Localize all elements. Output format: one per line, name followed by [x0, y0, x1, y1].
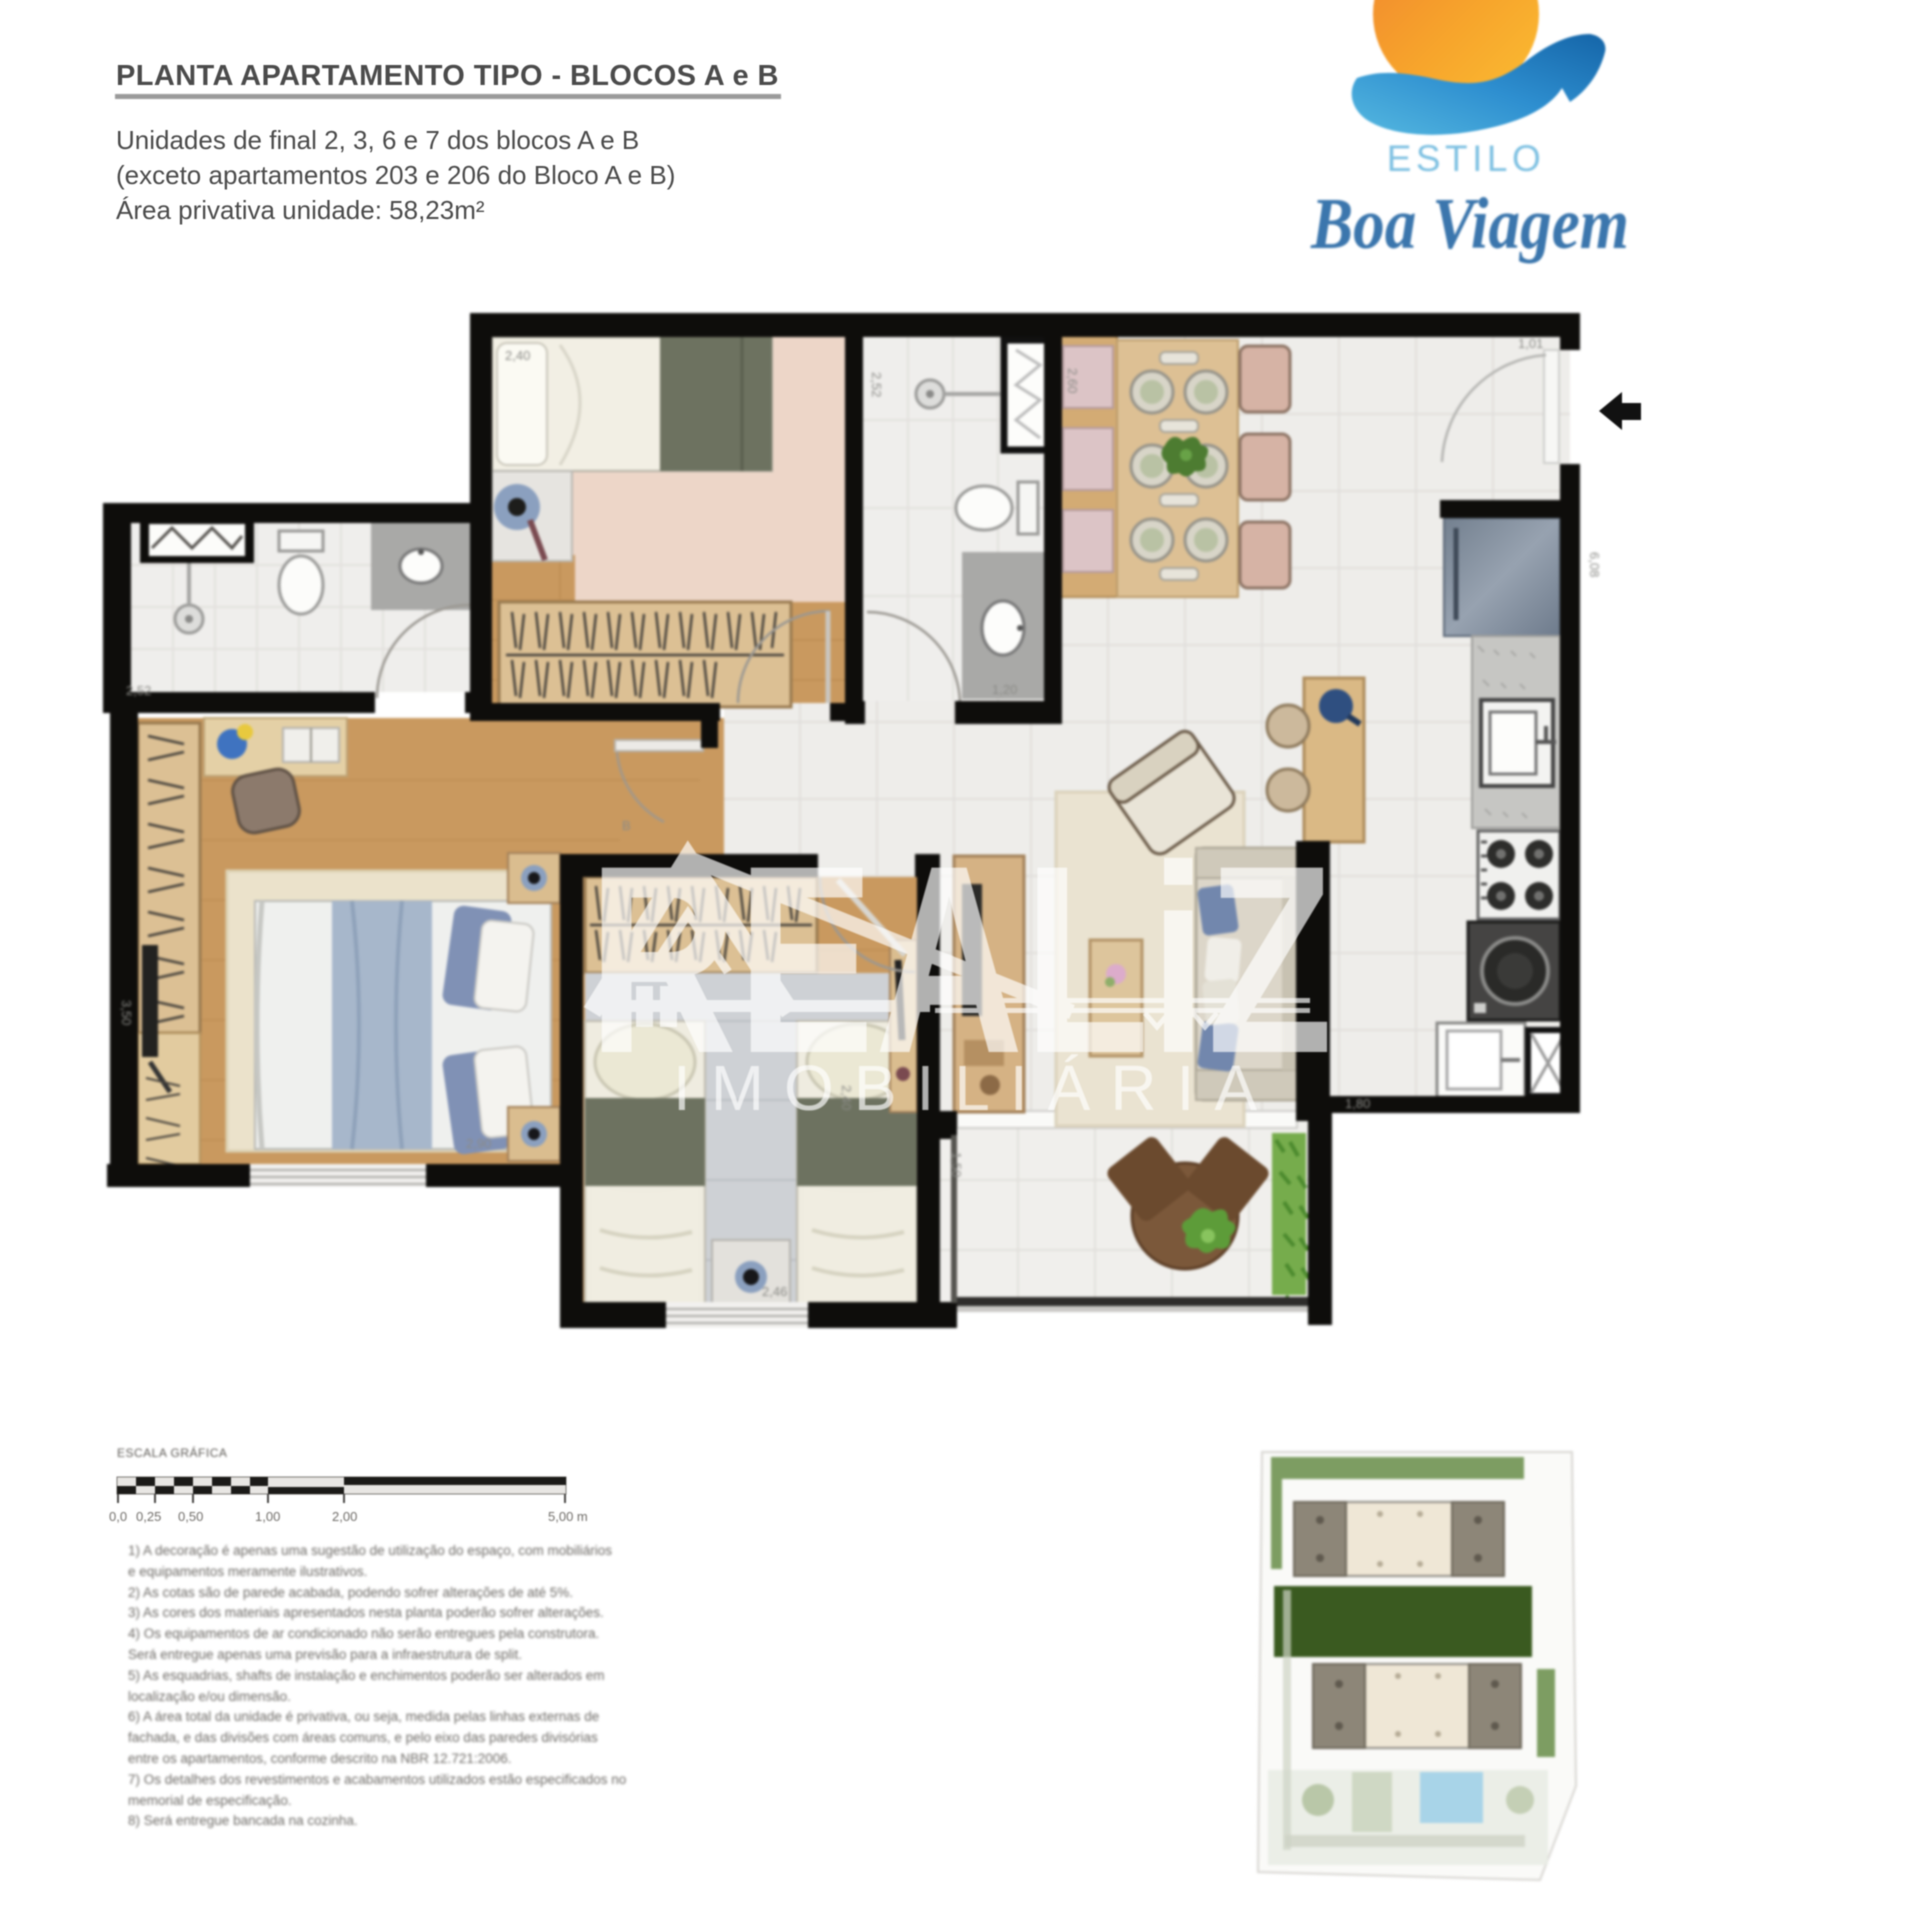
svg-text:IMOBILIÁRIA: IMOBILIÁRIA	[673, 1052, 1277, 1124]
svg-text:Boa Viagem: Boa Viagem	[1310, 183, 1629, 264]
svg-text:2,46: 2,46	[762, 1284, 787, 1299]
svg-text:2,40: 2,40	[505, 348, 530, 363]
svg-text:3,50: 3,50	[119, 1000, 134, 1025]
svg-text:2,00: 2,00	[332, 1509, 357, 1524]
svg-text:0,50: 0,50	[178, 1509, 203, 1524]
svg-text:0,0: 0,0	[109, 1509, 127, 1524]
svg-text:0,25: 0,25	[136, 1509, 161, 1524]
svg-text:1,50: 1,50	[949, 1152, 964, 1177]
svg-text:1,20: 1,20	[992, 682, 1017, 697]
svg-text:1,00: 1,00	[255, 1509, 280, 1524]
svg-text:2,52: 2,52	[126, 683, 151, 698]
svg-text:2,52: 2,52	[869, 372, 884, 397]
svg-text:2,90: 2,90	[466, 1136, 491, 1151]
svg-text:1,80: 1,80	[1345, 1096, 1370, 1111]
svg-text:6,08: 6,08	[1587, 552, 1602, 577]
svg-text:2,60: 2,60	[1065, 368, 1080, 393]
svg-text:ESTILO: ESTILO	[1387, 138, 1546, 179]
svg-text:5,00 m: 5,00 m	[548, 1509, 588, 1524]
svg-text:1,01: 1,01	[1518, 336, 1543, 351]
